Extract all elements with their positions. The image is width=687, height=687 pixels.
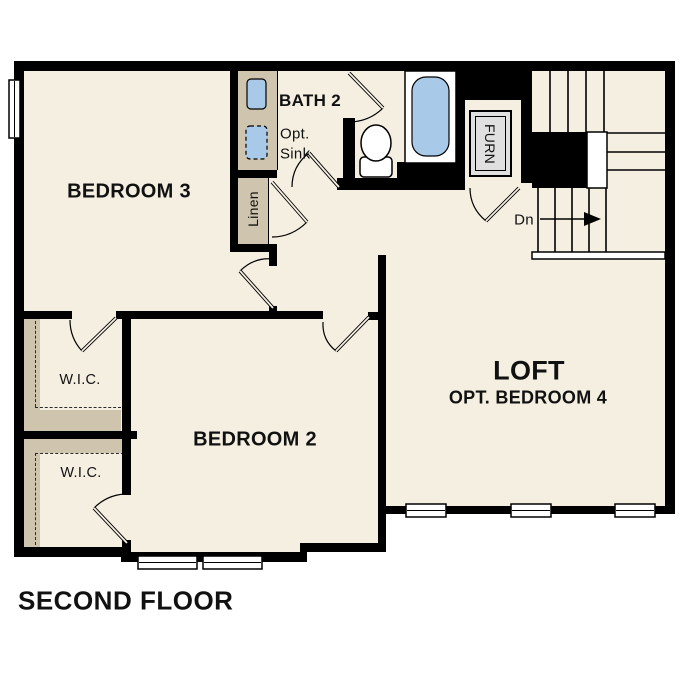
door-swing-arc (272, 222, 307, 237)
opt-sink-label-line2: Sink (280, 146, 310, 163)
optional-sink (246, 126, 267, 159)
room-label-bedroom2: BEDROOM 2 (193, 429, 317, 452)
room-label-loft-sub: OPT. BEDROOM 4 (449, 388, 607, 409)
linen-label: Linen (245, 191, 261, 227)
stair-railing (532, 252, 665, 259)
furnace-label: FURN (482, 124, 498, 164)
door-leaf-core (82, 318, 116, 351)
vanity-sink (247, 79, 266, 109)
room-label-wic1: W.I.C. (59, 372, 100, 388)
floor-plan: BEDROOM 3 BATH 2 Opt. Sink Linen FURN Dn… (0, 0, 687, 687)
fixtures-layer (0, 0, 687, 687)
door-leaf-core (272, 182, 307, 222)
door-swing-arc (351, 108, 383, 122)
door-leaf-core (240, 271, 273, 308)
door-leaf-core (309, 153, 339, 187)
room-label-bedroom3: BEDROOM 3 (67, 181, 191, 204)
stair-landing (587, 132, 607, 188)
stairs-down-label: Dn (514, 212, 534, 229)
bathtub-basin (412, 77, 449, 156)
door-leaf-core (349, 73, 383, 108)
room-label-bath2: BATH 2 (279, 91, 341, 111)
door-swing-arc (94, 494, 125, 508)
door-swing-arc (70, 320, 82, 351)
opt-sink-label-line1: Opt. (280, 126, 310, 143)
room-label-loft: LOFT (493, 356, 565, 387)
page-title: SECOND FLOOR (18, 586, 233, 617)
room-label-wic2: W.I.C. (60, 465, 101, 481)
down-arrow-head (584, 212, 601, 226)
toilet-bowl (361, 125, 391, 161)
door-swing-arc (470, 188, 486, 221)
door-leaf-core (94, 508, 127, 543)
door-swing-arc (323, 322, 336, 351)
door-leaf-core (336, 317, 369, 351)
door-swing-arc (240, 259, 273, 271)
